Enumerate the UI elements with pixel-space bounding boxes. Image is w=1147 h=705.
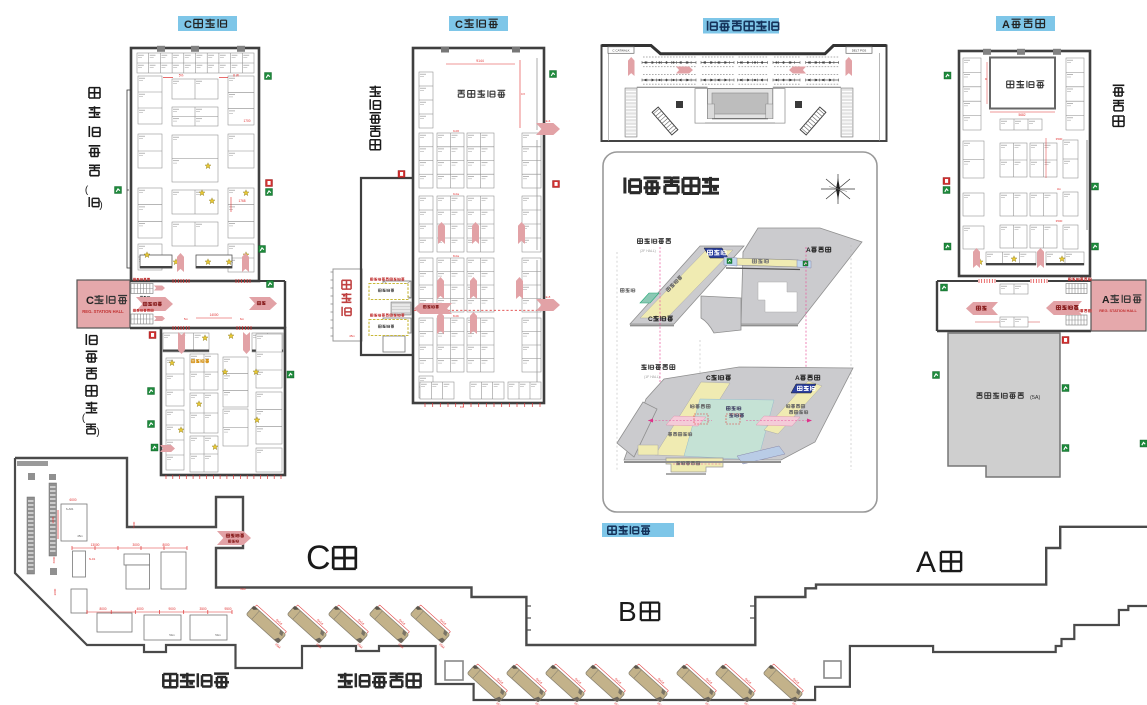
svg-text:(1F HALL): (1F HALL): [644, 375, 660, 379]
svg-text:54m: 54m: [169, 633, 175, 637]
svg-text:A: A: [806, 247, 811, 254]
svg-text:6-A01: 6-A01: [66, 507, 74, 511]
svg-text:C: C: [86, 295, 94, 307]
svg-text:1700: 1700: [243, 119, 250, 123]
svg-text:9-0a: 9-0a: [453, 192, 459, 196]
svg-text:1768: 1768: [238, 199, 245, 203]
svg-text:8-0b: 8-0b: [453, 314, 459, 318]
svg-text:C: C: [184, 19, 192, 31]
svg-text:8000: 8000: [99, 607, 106, 611]
svg-text:): ): [96, 427, 99, 438]
svg-text:A: A: [1002, 19, 1010, 31]
svg-text:7500: 7500: [132, 521, 136, 528]
svg-text:3500: 3500: [1056, 137, 1063, 141]
svg-text:C: C: [648, 316, 653, 323]
svg-text:9-06: 9-06: [453, 129, 459, 133]
svg-text:C: C: [706, 375, 711, 382]
svg-text:6000: 6000: [52, 556, 56, 563]
svg-text:CX: CX: [521, 92, 525, 96]
svg-text:9500: 9500: [224, 607, 231, 611]
svg-text:A: A: [1102, 294, 1110, 306]
svg-text:N02: N02: [240, 587, 246, 591]
svg-text:3500: 3500: [1056, 219, 1063, 223]
svg-text:A: A: [916, 546, 936, 579]
svg-text:B: B: [618, 596, 637, 627]
svg-text:REG. STATION HALL: REG. STATION HALL: [1099, 309, 1137, 313]
svg-text:C: C: [455, 19, 463, 31]
svg-text:3000: 3000: [132, 543, 139, 547]
svg-text:REG. STATION HALL: REG. STATION HALL: [82, 309, 124, 314]
svg-text:8 W: 8 W: [233, 74, 239, 78]
svg-text:E-8: E-8: [546, 295, 551, 299]
svg-text:A: A: [795, 375, 800, 382]
svg-text:2000: 2000: [53, 588, 57, 595]
svg-text:6m: 6m: [240, 317, 245, 321]
svg-text:E-6: E-6: [546, 119, 551, 123]
svg-text:3000: 3000: [51, 516, 55, 523]
svg-text:): ): [99, 200, 102, 211]
svg-text:5m: 5m: [184, 317, 189, 321]
svg-text:13000: 13000: [91, 543, 100, 547]
svg-text:9144: 9144: [476, 59, 484, 63]
svg-text:9000: 9000: [168, 607, 175, 611]
svg-text:C CATWALK: C CATWALK: [612, 49, 629, 53]
svg-text:54m: 54m: [215, 633, 221, 637]
svg-text:45m: 45m: [349, 334, 355, 338]
svg-text:4000: 4000: [136, 607, 143, 611]
svg-text:DELT POS: DELT POS: [852, 49, 867, 53]
svg-text:3500: 3500: [199, 607, 206, 611]
svg-text:14000: 14000: [210, 313, 219, 317]
svg-text:(2F HALL): (2F HALL): [640, 249, 656, 253]
svg-text:3m: 3m: [1057, 187, 1062, 191]
svg-text:45m: 45m: [77, 534, 83, 538]
svg-text:C: C: [306, 539, 331, 577]
svg-text:(5A): (5A): [1030, 395, 1041, 401]
svg-text:6000: 6000: [69, 498, 76, 502]
svg-text:8-0a: 8-0a: [453, 254, 459, 258]
svg-text:8000: 8000: [162, 543, 169, 547]
svg-text:9.8: 9.8: [460, 405, 465, 409]
svg-text:5%: 5%: [179, 74, 184, 78]
svg-text:N-01: N-01: [89, 557, 96, 561]
svg-text:5682: 5682: [1018, 113, 1025, 117]
